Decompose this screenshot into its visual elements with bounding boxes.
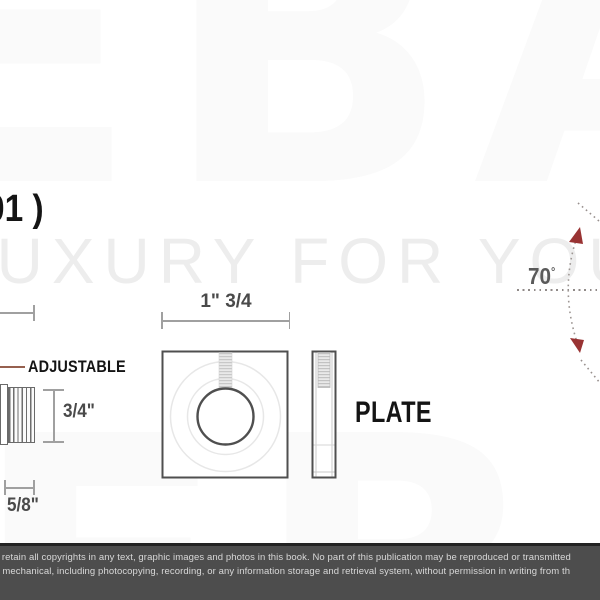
fitting-flange	[0, 384, 8, 445]
fitting-width-dimension: 5/8"	[7, 495, 39, 517]
watermark-slogan: LUXURY FOR YOU	[0, 229, 600, 293]
dim-34-cap-bottom	[43, 441, 64, 443]
swivel-lower-position-line	[581, 360, 600, 383]
cutoff-dimension-line	[0, 312, 34, 314]
rotation-arrow-down-icon	[570, 338, 584, 353]
fitting-threaded-body	[8, 387, 35, 443]
rotation-arrow-up-icon	[569, 227, 583, 244]
copyright-footer: rs retain all copyrights in any text, gr…	[0, 543, 600, 600]
swivel-upper-position-line	[578, 203, 599, 221]
adjustable-label: ADJUSTABLE	[28, 357, 126, 377]
dim-34-line	[53, 390, 55, 442]
dim-58-line	[4, 487, 35, 489]
footer-line-2: or mechanical, including photocopying, r…	[0, 565, 591, 579]
plate-threaded-stem	[219, 353, 232, 390]
plate-center-hole	[198, 389, 254, 445]
footer-line-1: rs retain all copyrights in any text, gr…	[0, 551, 591, 565]
plate-side-view	[311, 350, 337, 479]
watermark-top-letters: EBA	[0, 0, 600, 240]
product-code-partial: 01 )	[0, 188, 44, 231]
fitting-height-dimension: 3/4"	[63, 401, 95, 423]
dim-134-line	[161, 320, 290, 322]
plate-label: PLATE	[355, 396, 432, 430]
adjustable-leader-line	[0, 366, 25, 368]
dim-58-tick-right	[33, 480, 35, 495]
dim-134-tick-right	[289, 312, 291, 329]
cutoff-dimension-tick	[33, 305, 35, 321]
catalog-page: EBA EBA LUXURY FOR YOU 01 ) ADJUSTABLE 3…	[0, 0, 600, 600]
plate-width-dimension: 1" 3/4	[162, 291, 290, 313]
plate-front-view	[161, 350, 289, 479]
swivel-arc	[568, 237, 578, 345]
plate-side-threaded-plug	[318, 353, 330, 388]
swivel-arc-group	[548, 193, 600, 393]
